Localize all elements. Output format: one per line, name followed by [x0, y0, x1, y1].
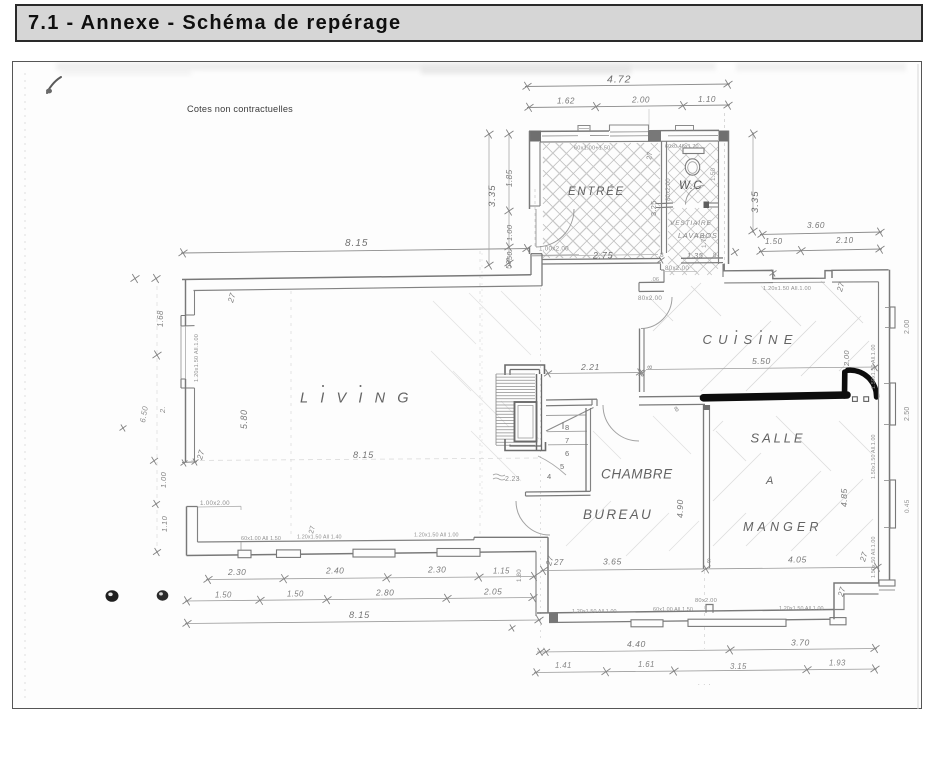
svg-text:8.15: 8.15: [349, 610, 370, 620]
svg-text:0.45: 0.45: [904, 499, 911, 513]
svg-text:1.50x.50 All.1.00: 1.50x.50 All.1.00: [871, 536, 877, 578]
svg-text:1.15: 1.15: [493, 567, 510, 576]
svg-text:27: 27: [836, 586, 847, 599]
svg-text:4.40: 4.40: [627, 639, 646, 649]
svg-text:2.21: 2.21: [580, 362, 600, 372]
svg-text:SALLE: SALLE: [751, 431, 806, 446]
svg-text:50: 50: [504, 260, 513, 269]
svg-text:27: 27: [553, 558, 564, 567]
svg-text:8: 8: [674, 406, 681, 414]
svg-text:1.50x1.50 All.1.00: 1.50x1.50 All.1.00: [871, 434, 877, 479]
svg-text:27: 27: [195, 449, 206, 462]
svg-text:2.: 2.: [158, 406, 167, 414]
svg-text:. . .: . . .: [698, 681, 711, 687]
svg-text:2.05: 2.05: [483, 587, 502, 597]
svg-text:5.50: 5.50: [752, 356, 771, 366]
svg-text:1.10: 1.10: [698, 95, 716, 104]
svg-text:4.05: 4.05: [788, 555, 807, 565]
svg-text:1.50: 1.50: [765, 237, 783, 246]
svg-text:VESTIAIRE: VESTIAIRE: [670, 220, 712, 227]
svg-text:4.85: 4.85: [839, 488, 849, 507]
svg-text:80x2.00: 80x2.00: [666, 178, 672, 201]
svg-text:3.35: 3.35: [487, 185, 498, 208]
svg-text:MANGER: MANGER: [743, 520, 822, 534]
svg-text:1.20x1.50 All.1.00: 1.20x1.50 All.1.00: [194, 334, 200, 382]
svg-text:1.41: 1.41: [555, 661, 572, 670]
svg-text:8: 8: [707, 558, 711, 565]
svg-text:3.60: 3.60: [807, 221, 825, 230]
svg-text:1.20x1.50 All 1.40: 1.20x1.50 All 1.40: [297, 535, 342, 541]
svg-text:1.85: 1.85: [505, 169, 514, 187]
svg-text:2.00: 2.00: [631, 96, 650, 105]
svg-text:BUREAU: BUREAU: [583, 507, 653, 522]
svg-text:1.35: 1.35: [687, 251, 704, 260]
svg-text:1.20x1.50 All.1.00: 1.20x1.50 All.1.00: [763, 286, 811, 292]
svg-text:8: 8: [647, 365, 654, 369]
svg-text:1.61: 1.61: [638, 660, 655, 669]
svg-text:1.10: 1.10: [160, 515, 169, 532]
svg-text:1.00x2.00: 1.00x2.00: [200, 500, 230, 507]
svg-text:80x2.00: 80x2.00: [638, 295, 662, 302]
svg-text:27: 27: [646, 151, 654, 160]
svg-text:50: 50: [507, 251, 514, 260]
svg-text:8.15: 8.15: [353, 450, 374, 460]
svg-text:LAVABOS: LAVABOS: [678, 231, 718, 240]
svg-text:2.30: 2.30: [427, 565, 446, 575]
svg-text:1.00x2.00: 1.00x2.00: [539, 246, 569, 253]
svg-text:2.00: 2.00: [904, 320, 911, 334]
svg-text:27: 27: [308, 525, 317, 534]
svg-text:1.93: 1.93: [829, 659, 846, 668]
svg-text:7: 7: [565, 436, 569, 445]
svg-text:3.25: 3.25: [649, 200, 658, 216]
svg-text:2.00: 2.00: [842, 350, 851, 367]
svg-text:2.40: 2.40: [325, 566, 344, 576]
svg-text:6: 6: [565, 449, 569, 458]
svg-text:2.10: 2.10: [835, 236, 854, 245]
svg-text:4: 4: [547, 472, 551, 481]
svg-text:4.90: 4.90: [675, 499, 685, 518]
svg-text:2.80: 2.80: [375, 588, 394, 598]
svg-text:Cotes non contractuelles: Cotes non contractuelles: [187, 104, 293, 114]
svg-text:3.70: 3.70: [791, 638, 810, 648]
svg-text:1.50: 1.50: [215, 591, 232, 600]
svg-text:5.80: 5.80: [239, 409, 249, 429]
svg-text:27: 27: [835, 281, 846, 294]
svg-text:2.23: 2.23: [505, 476, 520, 483]
svg-text:3.15: 3.15: [730, 662, 747, 671]
svg-text:4.72: 4.72: [607, 74, 631, 86]
svg-text:1.62: 1.62: [557, 97, 575, 106]
svg-text:5: 5: [560, 462, 564, 471]
svg-text:2.50: 2.50: [904, 407, 911, 421]
svg-text:1.68: 1.68: [156, 310, 165, 327]
svg-text:2.75: 2.75: [592, 251, 613, 261]
svg-text:1.20x1.50 All.1.00: 1.20x1.50 All.1.00: [779, 606, 824, 612]
svg-text:3.65: 3.65: [603, 557, 622, 567]
svg-text:80x2.00: 80x2.00: [695, 598, 717, 604]
svg-text:A: A: [765, 475, 773, 487]
svg-text:LIVING: LIVING: [300, 391, 421, 407]
svg-text:8: 8: [565, 423, 569, 432]
svg-text:ENTRÉE: ENTRÉE: [568, 185, 625, 198]
svg-text:1.50: 1.50: [710, 168, 717, 181]
svg-text:8.15: 8.15: [345, 238, 368, 249]
svg-text:60x1.00+1.50: 60x1.00+1.50: [574, 146, 610, 152]
svg-text:1.70: 1.70: [701, 235, 708, 248]
svg-text:3.35: 3.35: [750, 191, 761, 214]
svg-text:1.00: 1.00: [159, 471, 168, 488]
svg-text:CUISINE: CUISINE: [703, 332, 799, 347]
svg-text:27: 27: [226, 292, 237, 305]
svg-text:1.80: 1.80: [516, 569, 523, 582]
svg-text:1.00: 1.00: [505, 224, 514, 241]
svg-text:80x2.00: 80x2.00: [665, 265, 689, 272]
svg-text:CHAMBRE: CHAMBRE: [601, 467, 673, 482]
svg-text:6.50: 6.50: [138, 405, 150, 423]
svg-text:1.20x1.50 All 1.00: 1.20x1.50 All 1.00: [414, 533, 459, 539]
svg-text:27: 27: [858, 551, 870, 564]
svg-text:1.50x1.50 All.1.00: 1.50x1.50 All.1.00: [871, 344, 877, 389]
svg-text:60x1.00 All.1.50: 60x1.00 All.1.50: [653, 607, 693, 613]
svg-text:1.20x1.50 All.1.00: 1.20x1.50 All.1.00: [572, 609, 617, 615]
svg-text:1.50: 1.50: [287, 590, 304, 599]
svg-text:2.30: 2.30: [227, 567, 246, 577]
svg-text:60x1.00 All 1.50: 60x1.00 All 1.50: [241, 536, 281, 542]
